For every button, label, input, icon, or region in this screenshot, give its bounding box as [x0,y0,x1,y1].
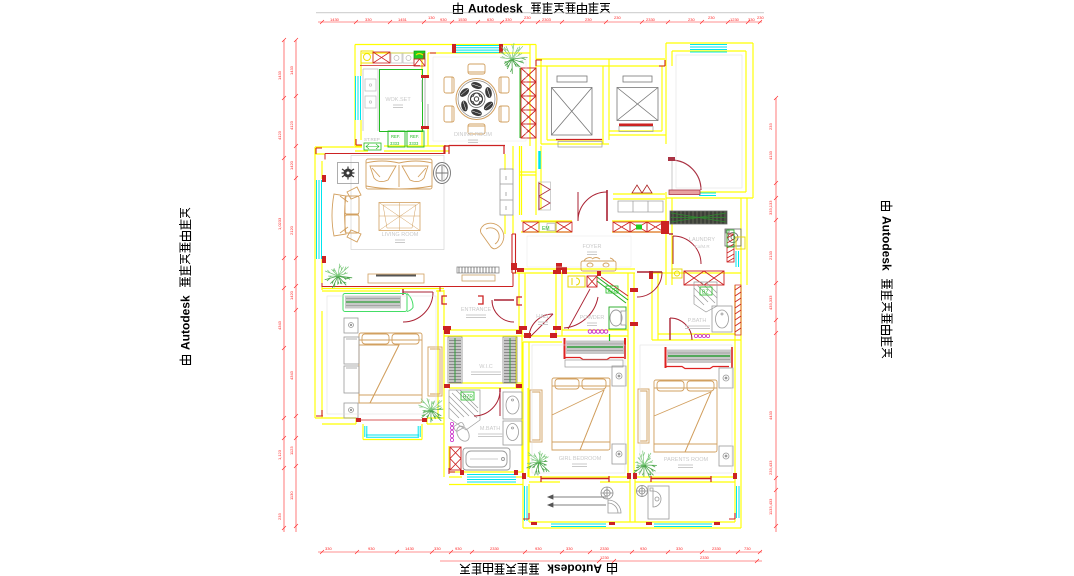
svg-text:333,133: 333,133 [768,200,773,215]
svg-text:PARENTS ROOM: PARENTS ROOM [664,457,709,463]
svg-text:1133,433: 1133,433 [768,498,773,515]
svg-text:4433: 4433 [768,410,773,420]
svg-text:930: 930 [535,546,542,551]
svg-text:FOYER: FOYER [583,244,602,250]
svg-text:1230: 1230 [600,555,610,560]
svg-text:4123: 4123 [277,130,282,140]
svg-text:2120: 2120 [289,225,294,235]
svg-text:230: 230 [585,17,592,22]
svg-text:130: 130 [428,15,435,20]
svg-text:2330: 2330 [600,546,610,551]
svg-text:M.BATH: M.BATH [480,426,500,432]
svg-text:4123: 4123 [289,120,294,130]
svg-text:2330: 2330 [700,555,710,560]
svg-text:930: 930 [640,546,647,551]
svg-text:233,433: 233,433 [768,460,773,475]
svg-text:330: 330 [325,546,332,551]
svg-text:233: 233 [768,123,773,130]
svg-text:1230: 1230 [730,17,740,22]
svg-text:230: 230 [614,15,621,20]
svg-text:1430: 1430 [330,17,340,22]
svg-text:2330: 2330 [646,17,656,22]
svg-text:4343: 4343 [277,320,282,330]
svg-text:2133: 2133 [768,250,773,260]
svg-text:1123: 1123 [289,446,294,455]
svg-text:BZR: BZR [608,288,618,294]
svg-text:330: 330 [365,17,372,22]
svg-text:230: 230 [688,17,695,22]
svg-text:330: 330 [566,546,573,551]
svg-text:330: 330 [505,17,512,22]
svg-text:P.BATH: P.BATH [688,318,707,324]
svg-text:POWDER: POWDER [580,315,605,321]
svg-text:W.I.C: W.I.C [479,364,492,370]
svg-text:433,333: 433,333 [768,295,773,310]
svg-text:730: 730 [744,546,751,551]
svg-text:4133: 4133 [768,150,773,160]
svg-text:630: 630 [487,17,494,22]
svg-text:1420: 1420 [289,290,294,300]
svg-text:2330: 2330 [712,546,722,551]
svg-text:330: 330 [748,17,755,22]
svg-text:930: 930 [440,17,447,22]
svg-text:1,0233: 1,0233 [277,217,282,230]
svg-text:3333: 3333 [409,141,419,146]
svg-text:230: 230 [757,15,764,20]
svg-text:2330: 2330 [490,546,500,551]
svg-text:330: 330 [676,546,683,551]
svg-text:LIVING ROOM: LIVING ROOM [382,232,419,238]
svg-text:ST.REP: ST.REP [364,137,380,142]
svg-text:1433: 1433 [289,65,294,75]
svg-text:930: 930 [368,546,375,551]
svg-text:LAUNDRY: LAUNDRY [689,237,716,243]
svg-text:ENTRANCE: ENTRANCE [461,307,492,313]
svg-text:EM: EM [542,226,550,232]
svg-text:1451: 1451 [398,17,408,22]
svg-text:3333: 3333 [390,141,400,146]
svg-text:1430: 1430 [405,546,415,551]
svg-text:230: 230 [708,15,715,20]
svg-text:1433: 1433 [277,70,282,80]
svg-text:1130: 1130 [289,491,294,500]
svg-text:230: 230 [524,15,531,20]
svg-text:REF.: REF. [410,134,419,139]
svg-text:WOK.SET: WOK.SET [385,97,411,103]
svg-text:233: 233 [277,513,282,520]
svg-text:4343: 4343 [289,370,294,380]
svg-text:1,123: 1,123 [277,449,282,460]
svg-text:Co/M.R: Co/M.R [694,244,710,249]
svg-text:BZR: BZR [463,395,473,401]
svg-text:REF.: REF. [391,134,400,139]
svg-text:GIRL BEDROOM: GIRL BEDROOM [559,456,602,462]
svg-text:330: 330 [434,546,441,551]
svg-text:2303: 2303 [542,17,552,22]
svg-text:930: 930 [455,546,462,551]
svg-text:1420: 1420 [289,160,294,170]
svg-text:HALL: HALL [536,314,550,320]
svg-text:DINING ROOM: DINING ROOM [454,132,492,138]
svg-text:BZ: BZ [702,290,708,296]
svg-text:1530: 1530 [458,17,468,22]
